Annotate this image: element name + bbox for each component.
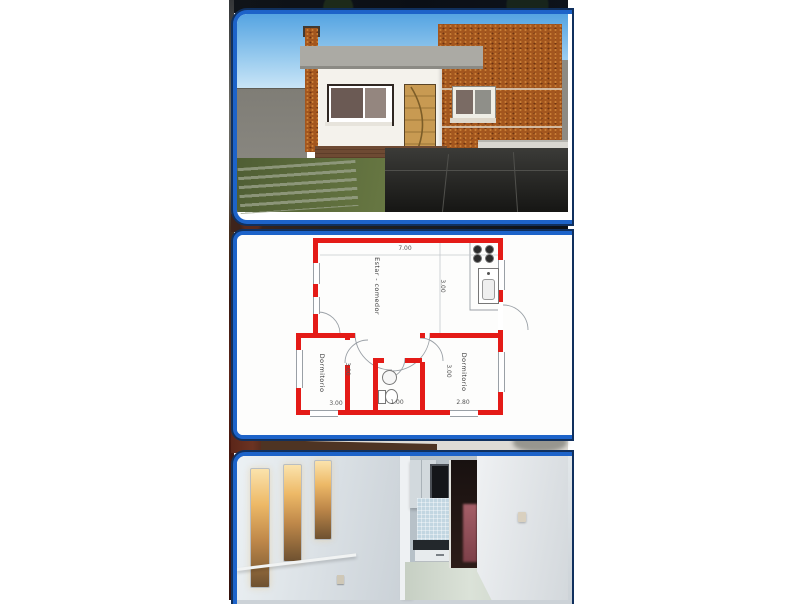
wall-segment: [498, 238, 503, 260]
wall-segment: [430, 333, 498, 338]
window-symbol: [313, 263, 320, 284]
lit-niche-1: [250, 468, 270, 588]
lawn-pavers: [238, 160, 359, 214]
pink-room-glimpse: [463, 504, 477, 562]
lit-niche-2: [283, 464, 302, 562]
bathroom-sink-symbol: [382, 370, 397, 385]
wall-segment: [345, 333, 350, 340]
window-glass: [331, 88, 363, 118]
wall-segment: [498, 392, 503, 415]
right-wall: [477, 456, 568, 600]
dimension-bath-width: 1.00: [379, 400, 415, 406]
window-sill: [325, 122, 392, 126]
wall-segment: [296, 333, 301, 350]
kitchen-sink-symbol: [478, 268, 499, 304]
stove-symbol: [472, 244, 496, 262]
window-symbol: [296, 350, 303, 388]
room-label-bedroom-left: Dormitorio: [313, 343, 325, 403]
interior-scene: [237, 456, 572, 604]
door-opening: [498, 302, 503, 330]
front-lawn: [237, 158, 402, 212]
window-glass: [475, 90, 491, 114]
floor-plan-panel: Estar - comedor Dormitorio Dormitorio 7.…: [233, 231, 572, 439]
room-label-living: Estar - comedor: [366, 246, 380, 326]
window-symbol: [450, 410, 478, 417]
window-symbol: [313, 297, 320, 314]
page: { "collage": { "accent_blue": "#1d63c9",…: [0, 0, 800, 600]
wall-segment: [296, 388, 301, 415]
wall-segment: [313, 238, 318, 263]
wall-segment: [338, 410, 450, 415]
exterior-render-panel: [233, 10, 572, 224]
countertop: [413, 540, 451, 550]
brick-wall-window: [452, 86, 496, 120]
lit-niche-3: [314, 460, 332, 540]
wall-outlet: [337, 575, 344, 584]
tiled-backsplash: [417, 498, 449, 544]
wall-segment: [420, 333, 425, 338]
window-symbol: [498, 260, 505, 290]
window-sill-band: [450, 118, 496, 123]
dark-doorway: [449, 460, 481, 568]
wall-segment: [420, 362, 425, 415]
dimension-bedroom-right-depth: 3.00: [445, 353, 451, 389]
wall-segment: [313, 238, 503, 243]
parapet-band: [300, 46, 483, 69]
driveway: [385, 148, 568, 212]
room-label-bedroom-right: Dormitorio: [455, 342, 467, 402]
wall-segment: [498, 330, 503, 352]
window-glass: [456, 90, 473, 114]
wall-segment: [373, 358, 378, 415]
window-glass: [365, 88, 386, 118]
window-symbol: [310, 410, 338, 417]
window-symbol: [498, 352, 505, 392]
exterior-render-scene: [237, 14, 572, 220]
floor-plan-drawing: Estar - comedor Dormitorio Dormitorio 7.…: [237, 235, 572, 435]
dimension-bedroom-left-width: 3.00: [318, 401, 354, 407]
facade-window: [327, 84, 394, 126]
dimension-living-depth: 3.00: [439, 268, 445, 304]
dimension-living-width: 7.00: [387, 246, 423, 252]
light-switch: [518, 512, 526, 522]
mortar-line: [438, 126, 562, 128]
dimension-bedroom-left-depth: 3.00: [344, 351, 350, 387]
dimension-bedroom-right-width: 2.80: [445, 400, 481, 406]
wall-segment: [313, 314, 318, 338]
interior-photo-panel: [233, 452, 572, 604]
wall-segment: [313, 284, 318, 297]
